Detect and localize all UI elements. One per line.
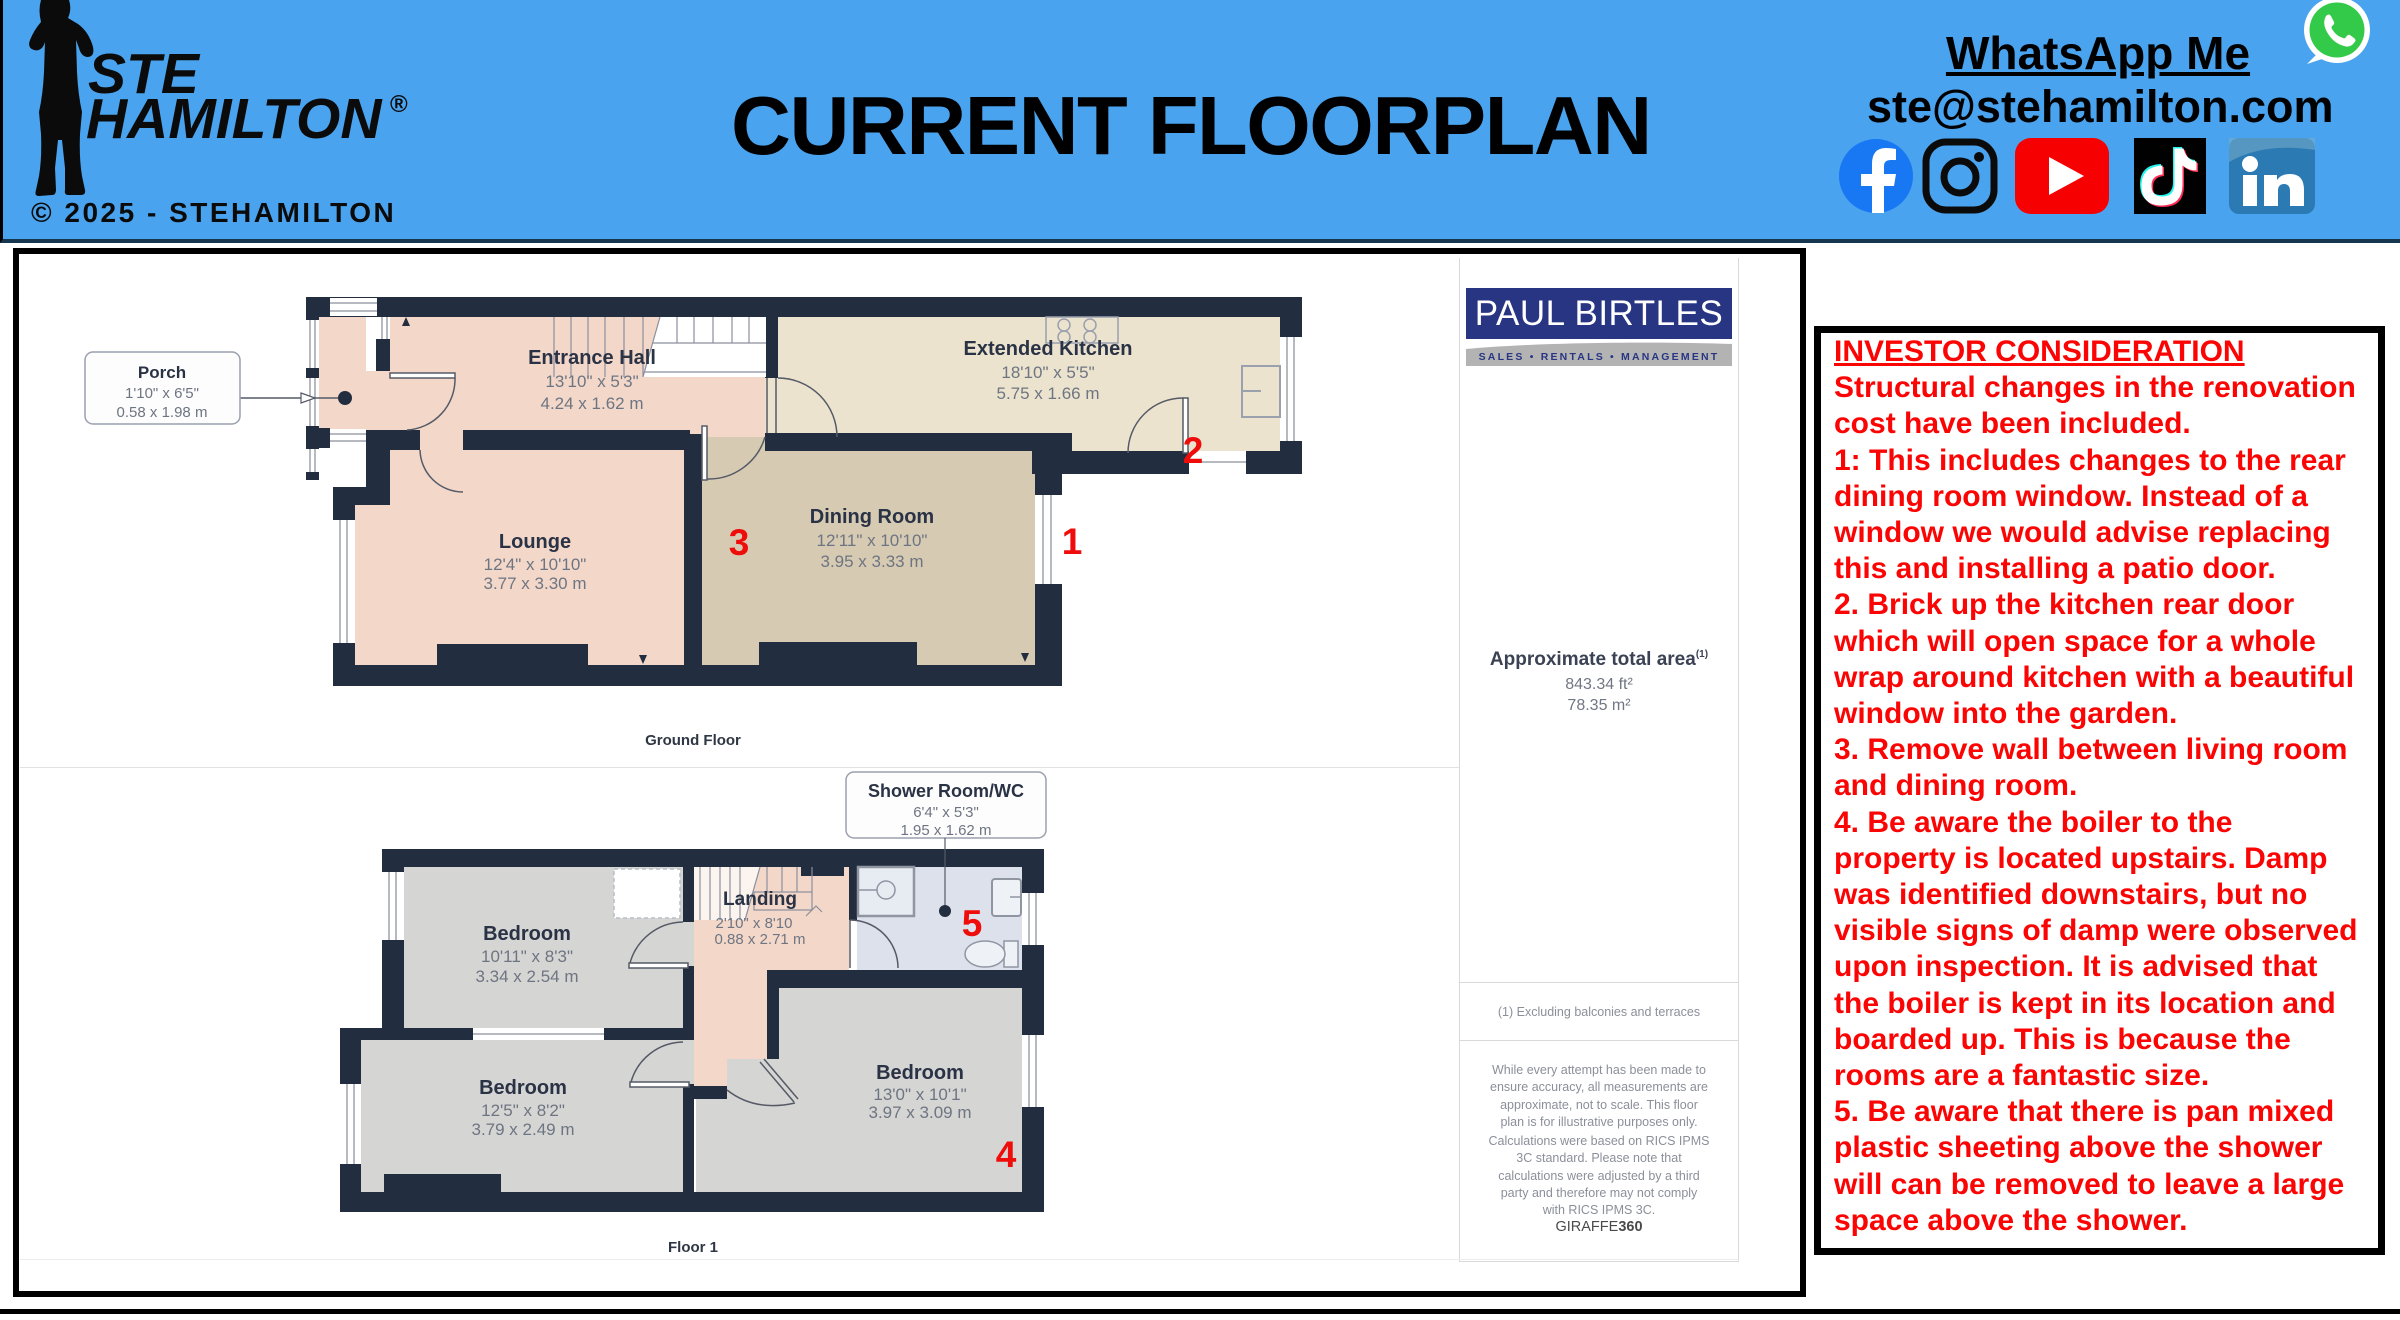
svg-text:Landing: Landing [723, 889, 797, 910]
svg-text:Extended Kitchen: Extended Kitchen [964, 338, 1133, 360]
svg-text:18'10" x 5'5": 18'10" x 5'5" [1001, 363, 1094, 382]
svg-text:Floor 1: Floor 1 [668, 1239, 718, 1256]
svg-text:1.95 x 1.62 m: 1.95 x 1.62 m [901, 822, 992, 839]
svg-text:3.34 x 2.54 m: 3.34 x 2.54 m [475, 967, 578, 986]
svg-text:1'10" x 6'5": 1'10" x 6'5" [125, 385, 199, 402]
svg-text:0.88 x 2.71 m: 0.88 x 2.71 m [715, 931, 806, 948]
svg-text:4: 4 [996, 1134, 1017, 1175]
svg-text:Lounge: Lounge [499, 531, 571, 553]
svg-text:Bedroom: Bedroom [483, 923, 571, 945]
svg-text:10'11" x 8'3": 10'11" x 8'3" [481, 947, 573, 966]
svg-text:6'4" x 5'3": 6'4" x 5'3" [913, 804, 979, 821]
svg-text:0.58 x 1.98 m: 0.58 x 1.98 m [117, 404, 208, 421]
svg-text:Ground Floor: Ground Floor [645, 732, 741, 749]
svg-text:1: 1 [1062, 521, 1083, 562]
svg-text:2: 2 [1183, 430, 1204, 471]
svg-text:3.77 x 3.30 m: 3.77 x 3.30 m [483, 574, 586, 593]
svg-text:5.75 x 1.66 m: 5.75 x 1.66 m [996, 384, 1099, 403]
svg-text:Entrance Hall: Entrance Hall [528, 347, 656, 369]
svg-text:Porch: Porch [138, 363, 186, 382]
svg-text:13'0" x 10'1": 13'0" x 10'1" [873, 1085, 966, 1104]
svg-text:3.79 x 2.49 m: 3.79 x 2.49 m [471, 1120, 574, 1139]
svg-text:Bedroom: Bedroom [479, 1077, 567, 1099]
svg-text:12'11" x 10'10": 12'11" x 10'10" [817, 531, 928, 550]
svg-text:13'10" x 5'3": 13'10" x 5'3" [545, 372, 638, 391]
svg-text:3.97 x 3.09 m: 3.97 x 3.09 m [868, 1103, 971, 1122]
svg-text:2'10" x 8'10: 2'10" x 8'10 [716, 915, 793, 932]
svg-text:4.24 x 1.62 m: 4.24 x 1.62 m [540, 394, 643, 413]
svg-text:3: 3 [729, 522, 750, 563]
svg-text:3.95 x 3.33 m: 3.95 x 3.33 m [820, 552, 923, 571]
svg-text:12'4" x 10'10": 12'4" x 10'10" [484, 555, 587, 574]
svg-text:5: 5 [962, 903, 983, 944]
svg-text:12'5" x 8'2": 12'5" x 8'2" [481, 1101, 565, 1120]
svg-text:Dining Room: Dining Room [810, 506, 934, 528]
svg-text:Bedroom: Bedroom [876, 1062, 964, 1084]
svg-text:Shower Room/WC: Shower Room/WC [868, 781, 1024, 801]
